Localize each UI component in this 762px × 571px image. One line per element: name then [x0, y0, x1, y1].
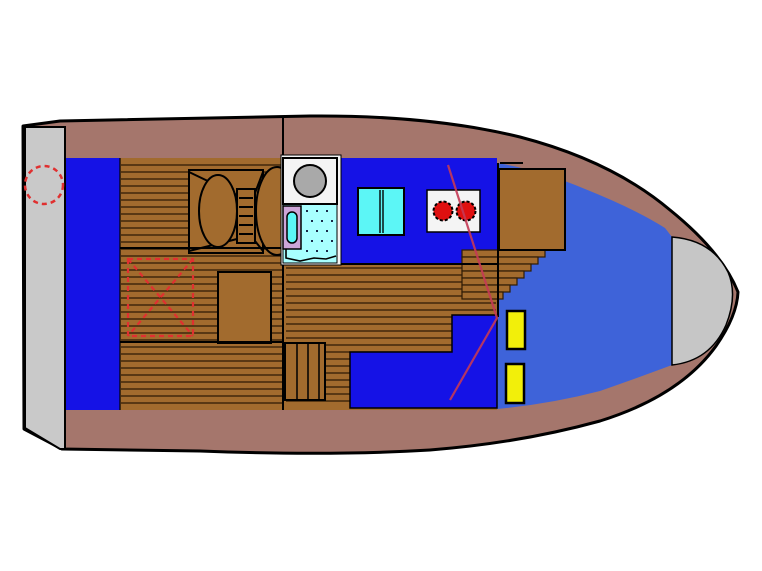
- bathroom: [281, 155, 341, 265]
- companionway-steps-icon: [285, 343, 325, 400]
- stove-burners-icon: [427, 190, 480, 232]
- floorplan-canvas: [0, 0, 762, 571]
- side-deck: [66, 158, 120, 410]
- toilet-icon: [283, 206, 301, 249]
- berth-ladder-icon: [237, 189, 255, 243]
- wash-basin-icon: [283, 158, 337, 204]
- stern-platform-icon: [25, 127, 65, 449]
- storage-box-icon: [218, 272, 271, 343]
- helm-seat-icon: [499, 169, 565, 250]
- locker-icon: [507, 311, 525, 349]
- boat-floorplan: [0, 0, 762, 571]
- locker-icon: [506, 364, 524, 403]
- bow-deck-icon: [672, 237, 733, 365]
- fridge-cabinet-icon: [358, 188, 404, 235]
